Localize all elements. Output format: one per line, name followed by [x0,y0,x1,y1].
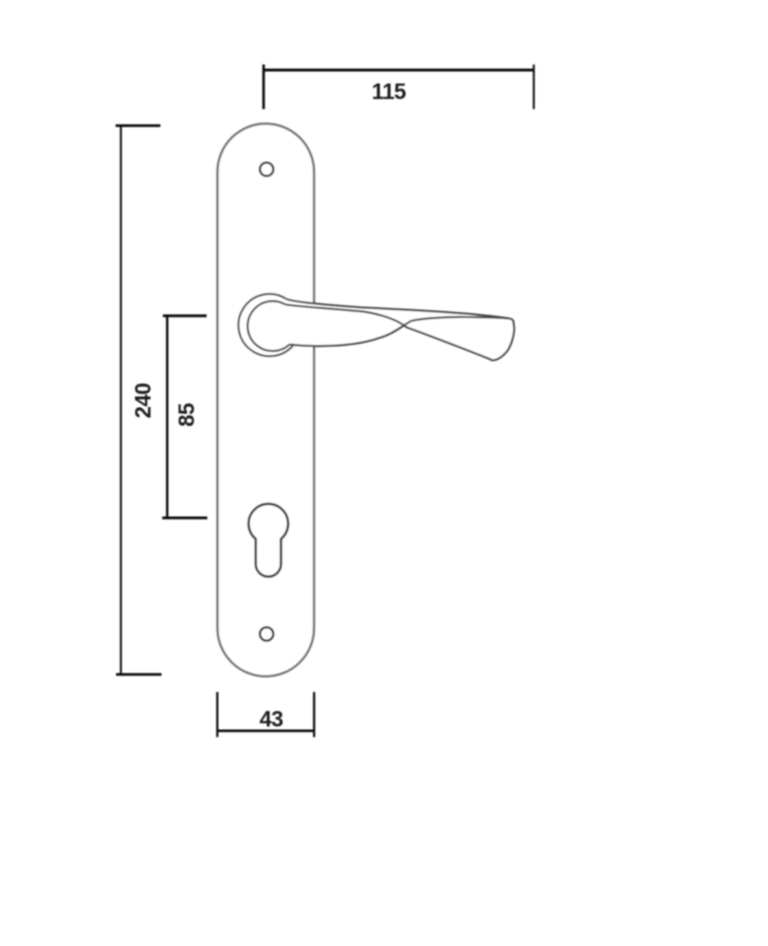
svg-text:240: 240 [131,383,156,418]
svg-text:43: 43 [260,706,284,731]
svg-text:85: 85 [174,403,199,427]
svg-text:115: 115 [372,79,406,104]
